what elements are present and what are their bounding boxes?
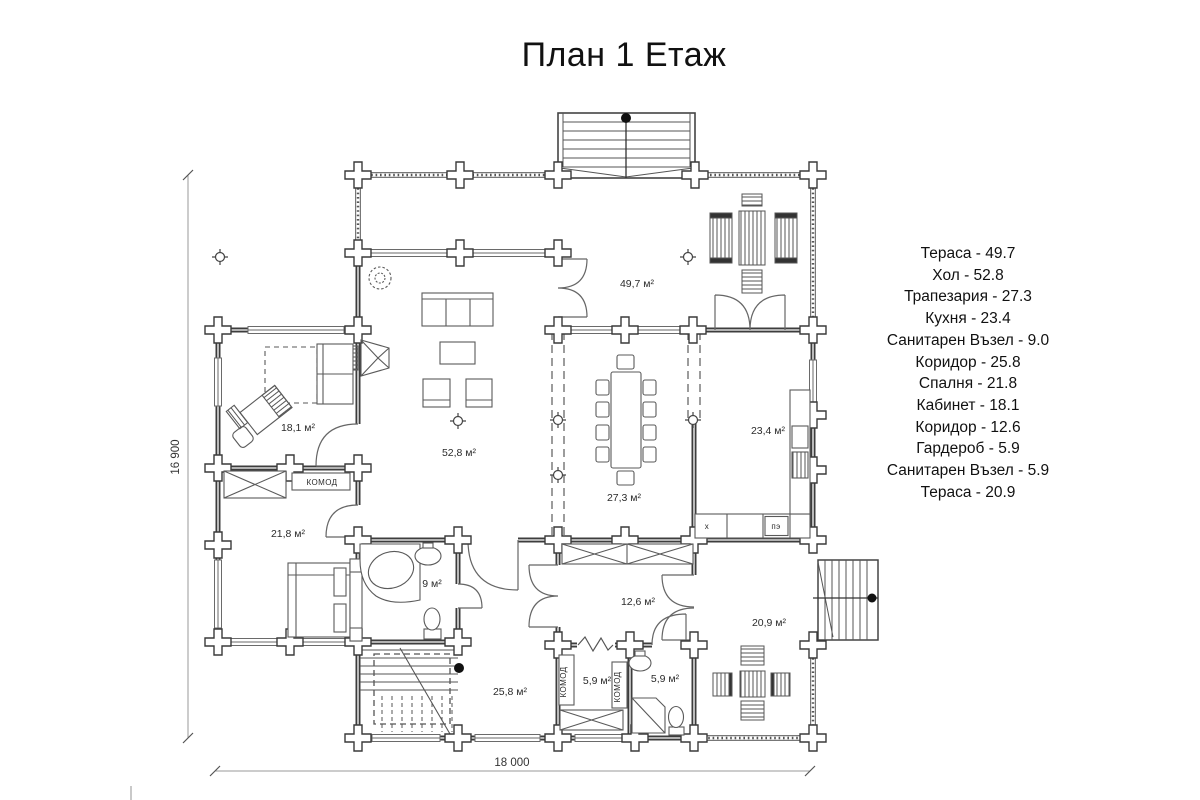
pillow [334,568,346,596]
sofa [422,293,493,326]
scan-artifact [130,786,132,800]
sun-lounger [710,213,732,263]
room-label-bedroom: 21,8 м² [271,528,306,540]
corridor-wardrobe [562,544,693,564]
entrance-stairs-top [558,113,695,178]
sun-lounger [775,213,797,263]
terrace-table [740,671,765,697]
room-label-dining: 27,3 м² [607,492,642,504]
coffee-table [440,342,475,364]
kitchen-counter [695,514,810,538]
bedroom-furniture [224,471,362,641]
floor-plan-page: План 1 Етаж Тераса - 49.7 Хол - 52.8 Тра… [0,0,1200,800]
windows [215,250,817,742]
terrace-table [742,270,762,293]
floor-plan-drawing: 49,7 м² 52,8 м² 27,3 м² 23,4 м² 18,1 м² … [0,0,1200,800]
room-label-terrace-bottom: 20,9 м² [752,617,787,629]
dimension-width: 18 000 [210,757,815,776]
room-label-closet: 5,9 м² [583,675,612,687]
sun-lounger [739,211,765,265]
terrace-top-furniture [710,194,797,293]
dimension-height-label: 16 900 [170,439,182,474]
room-label-corridor-main: 25,8 м² [493,686,528,698]
room-label-bathroom: 9 м² [422,578,442,590]
interior-stairs [360,648,464,734]
bathroom-fixtures [360,543,441,639]
dining-furniture [596,355,656,485]
fireplace [349,340,389,376]
fridge [792,426,808,448]
dining-table [611,372,641,468]
terrace-table [742,194,762,206]
pillow [334,604,346,632]
room-label-hall: 52,8 м² [442,447,477,459]
komod-label: КОМОД [307,478,338,487]
terrace-chair [741,701,764,720]
room-label-terrace-top: 49,7 м² [620,278,655,290]
room-label-wc: 5,9 м² [651,673,680,685]
plant [369,267,391,289]
shower [632,698,665,733]
armchair [466,379,492,407]
stairs-direction-dot [621,113,631,123]
toilet [669,707,685,736]
kitchen-unit-label: х [705,522,709,531]
stairs-direction-dot [868,594,877,603]
desk-chair [231,425,255,449]
toilet [424,608,441,639]
armchair [423,379,450,407]
dimension-width-label: 18 000 [494,757,529,769]
appliance [792,452,808,478]
room-label-corridor-small: 12,6 м² [621,596,656,608]
room-label-cabinet: 18,1 м² [281,422,316,434]
komod-label: КОМОД [559,666,568,697]
terrace-chair [741,646,764,665]
wall-break-symbol [577,637,615,652]
kitchen-unit-label: пэ [771,522,780,531]
stairs-direction-dot [454,663,464,673]
sink [415,547,441,565]
wc-fixtures [629,651,684,735]
room-label-kitchen: 23,4 м² [751,425,786,437]
kitchen-fixtures [695,390,810,538]
komod-label: КОМОД [613,671,622,702]
terrace-bottom-furniture [713,646,790,720]
exterior-stairs-right [813,560,878,640]
dimension-height: 16 900 [170,170,193,743]
walls [218,253,813,738]
hall-furniture [349,267,493,407]
sink [629,655,651,671]
